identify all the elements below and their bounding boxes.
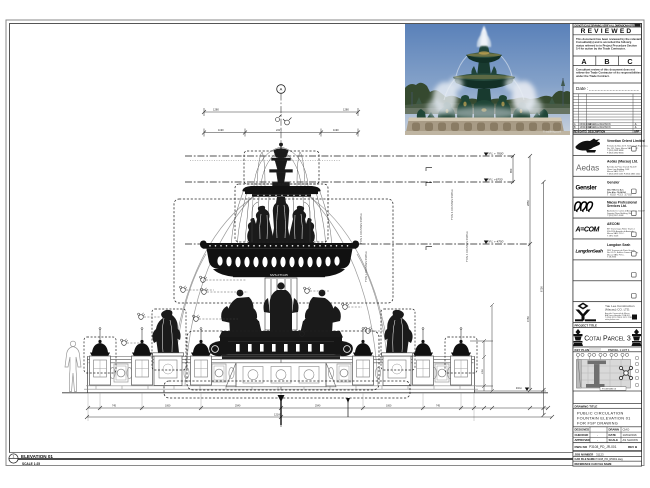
svg-text:CHECKED: CHECKED: [575, 433, 589, 437]
svg-text:FOUNTAIN 03: FOUNTAIN 03: [602, 388, 617, 391]
svg-text:Gensler: Gensler: [607, 181, 620, 185]
svg-text:F.F.L + 7600: F.F.L + 7600: [487, 151, 504, 155]
svg-text:DWG NO: DWG NO: [575, 445, 588, 449]
svg-text:TYPE 2 FOUNTAIN STATUE: TYPE 2 FOUNTAIN STATUE: [360, 213, 363, 244]
svg-text:Gensler: Gensler: [576, 185, 598, 192]
svg-text:© fotothing.com: © fotothing.com: [543, 130, 561, 134]
svg-text:AS SHOWN: AS SHOWN: [623, 438, 638, 442]
svg-text:MVS-FTN-05: MVS-FTN-05: [270, 273, 288, 277]
svg-text:SCALE 1:25: SCALE 1:25: [22, 462, 40, 466]
svg-text:Langdon Seah: Langdon Seah: [607, 243, 630, 247]
svg-text:JOB NUMBER: JOB NUMBER: [575, 452, 594, 456]
svg-text:SCALE: SCALE: [609, 438, 619, 442]
svg-text:5.4 for action by the Trade Co: 5.4 for action by the Trade Contractor.: [576, 47, 626, 51]
svg-text:T 650 433 3700: T 650 433 3700: [607, 192, 632, 196]
svg-text:31123: 31123: [596, 452, 604, 456]
svg-text:2850: 2850: [526, 200, 530, 206]
svg-text:REV B: REV B: [628, 445, 638, 449]
svg-text:F (853) 2882 8666: F (853) 2882 8666: [607, 152, 624, 154]
svg-text:1060: 1060: [165, 405, 171, 408]
svg-text:DRAWING TITLE: DRAWING TITLE: [575, 404, 598, 408]
svg-text:TYPE 1 FOUNTAIN STATUE: TYPE 1 FOUNTAIN STATUE: [365, 251, 368, 282]
svg-text:A=COM: A=COM: [575, 227, 600, 234]
svg-text:Aedas (Macau) Ltd.: Aedas (Macau) Ltd.: [607, 160, 638, 164]
svg-text:1280: 1280: [213, 108, 219, 112]
svg-text:DESIGNED: DESIGNED: [575, 428, 590, 432]
svg-text:1190: 1190: [218, 128, 224, 132]
svg-text:P3108_PD_JR-001: P3108_PD_JR-001: [589, 445, 617, 449]
svg-text:2540: 2540: [315, 405, 321, 408]
svg-text:under the Trade Contract.: under the Trade Contract.: [576, 74, 610, 78]
svg-text:A: A: [581, 57, 586, 66]
svg-text:-: -: [597, 433, 598, 437]
svg-text:850: 850: [509, 168, 513, 173]
svg-text:745: 745: [436, 405, 441, 408]
svg-text:PROJECT TITLE: PROJECT TITLE: [575, 323, 598, 327]
svg-text:KEY PLAN: KEY PLAN: [575, 348, 590, 352]
svg-text:F.F.L + 4750: F.F.L + 4750: [487, 239, 504, 243]
svg-text:2215: 2215: [276, 128, 282, 132]
svg-text:1280: 1280: [343, 108, 349, 112]
svg-text:Services Ltd.: Services Ltd.: [607, 204, 627, 208]
svg-text:F.F.L: F.F.L: [516, 386, 523, 390]
svg-text:(Macau) CO. LTD.: (Macau) CO. LTD.: [605, 308, 630, 312]
svg-text:B: B: [604, 57, 609, 66]
svg-text:1190: 1190: [333, 128, 339, 132]
svg-text:REFERENCE CAD FILE NAME: REFERENCE CAD FILE NAME: [575, 462, 612, 466]
svg-text:AECOM: AECOM: [607, 222, 620, 226]
svg-text:Venetian Orient Limited: Venetian Orient Limited: [607, 139, 645, 143]
svg-text:6750: 6750: [539, 286, 543, 292]
svg-text:T (853) 2833 1133 F (853) 283: T (853) 2833 1133 F (853) 2833 1522: [607, 173, 641, 175]
svg-text:F.F.L +6750: F.F.L +6750: [487, 177, 503, 181]
svg-text:Aedas: Aedas: [576, 164, 599, 173]
svg-text:2540: 2540: [235, 405, 241, 408]
svg-text:DATE: DATE: [609, 433, 617, 437]
svg-text:www.yaulee.com: www.yaulee.com: [605, 319, 620, 321]
svg-text:T (853) 2875 3088: T (853) 2875 3088: [607, 215, 624, 217]
svg-text:GENERAL REVISION: GENERAL REVISION: [588, 126, 611, 129]
svg-text:LangdonSeah: LangdonSeah: [576, 249, 604, 254]
svg-text:Date :: Date :: [576, 86, 588, 91]
svg-text:745: 745: [112, 405, 117, 408]
svg-text:1060: 1060: [386, 405, 392, 408]
svg-text:TYPE 3 FOUNTAIN STATUE: TYPE 3 FOUNTAIN STATUE: [451, 189, 454, 220]
svg-text:REVIEWED: REVIEWED: [581, 28, 634, 35]
svg-text:GENERAL REVISION: GENERAL REVISION: [588, 123, 611, 126]
svg-text:ELEVATION 01: ELEVATION 01: [21, 454, 53, 459]
svg-text:CIAO: CIAO: [623, 428, 631, 432]
svg-text:4750: 4750: [526, 316, 530, 322]
svg-text:FOR FSP DRAWING: FOR FSP DRAWING: [577, 421, 618, 426]
svg-text:A: A: [280, 87, 283, 92]
svg-text:1: 1: [13, 455, 15, 459]
svg-text:DRAWN: DRAWN: [609, 428, 620, 432]
svg-text:PARCEL 1 LOT 1: PARCEL 1 LOT 1: [608, 348, 630, 352]
svg-text:13/04/2016: 13/04/2016: [623, 433, 637, 437]
svg-text:T 28 2833: T 28 2833: [607, 257, 617, 259]
svg-text:-: -: [597, 438, 598, 442]
svg-text:COTAI PARCEL 3: COTAI PARCEL 3: [584, 336, 631, 343]
svg-text:C: C: [627, 57, 632, 66]
svg-text:1350: 1350: [482, 368, 484, 374]
svg-text:T 2872 3128: T 2872 3128: [607, 235, 619, 237]
svg-text:TYPE 4 FOUNTAIN STATUE: TYPE 4 FOUNTAIN STATUE: [466, 231, 469, 262]
svg-text:CAD FILE NAME P3108_PD_R5001.d: CAD FILE NAME P3108_PD_R5001.dwg: [575, 457, 624, 461]
svg-text:APPROVED: APPROVED: [575, 438, 591, 442]
